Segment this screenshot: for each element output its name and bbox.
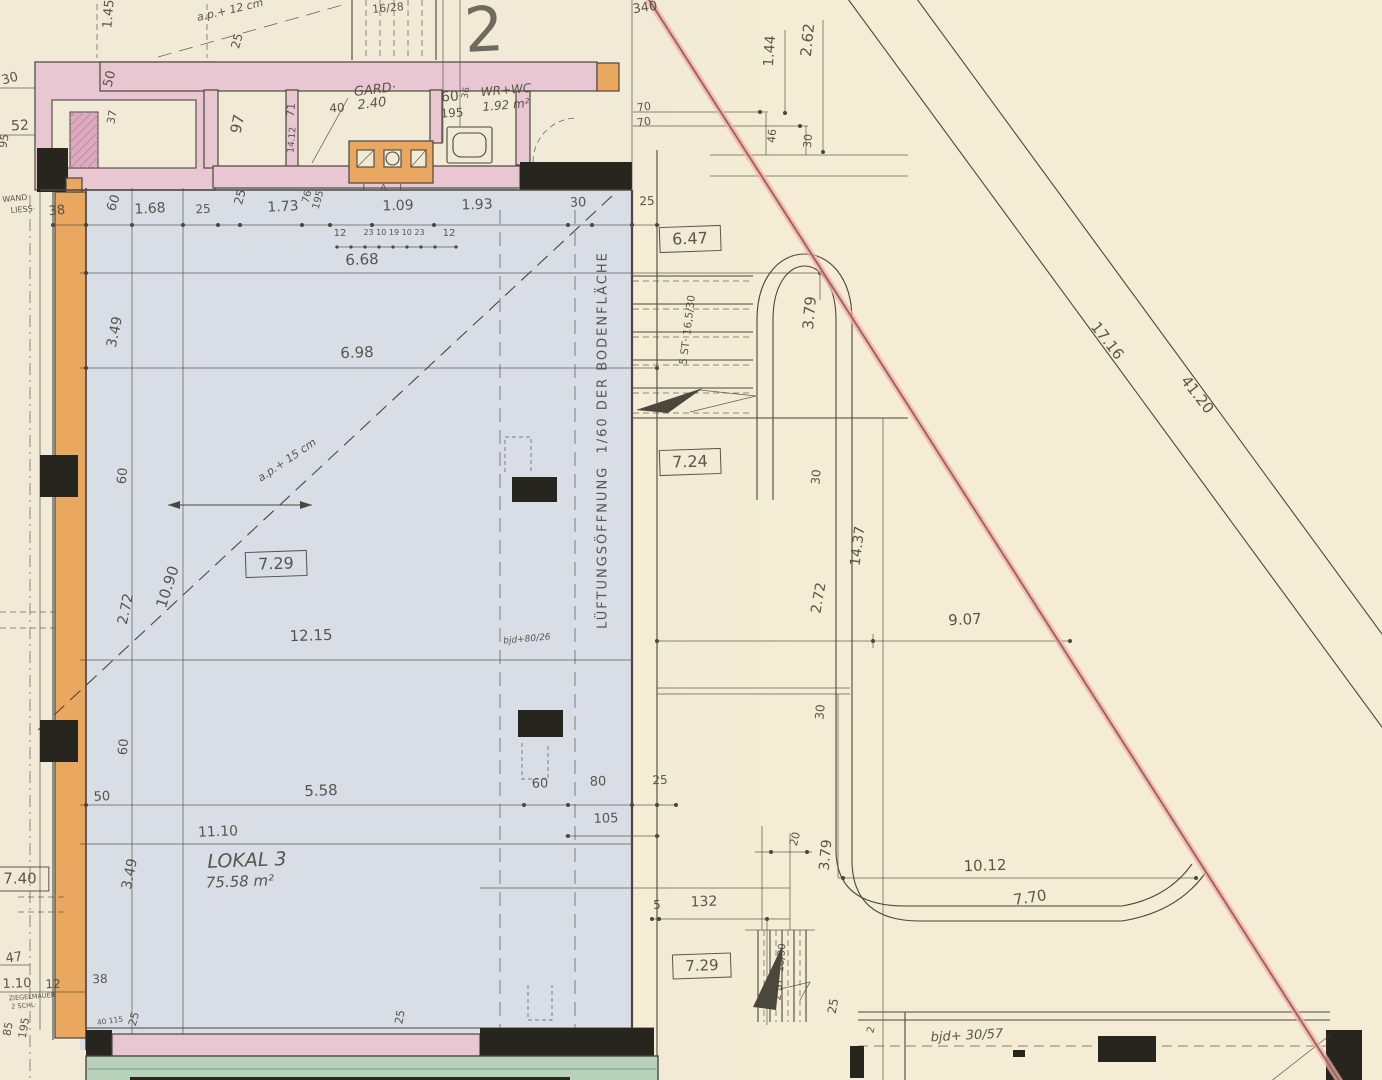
- dimension-label: 16/28: [372, 1, 405, 15]
- dimension-label: 30: [802, 134, 814, 149]
- text-annotation: LIESS·: [10, 205, 35, 215]
- text-annotation: LÜFTUNGSÖFFNUNG 1/60 DER BODENFLÄCHE: [597, 251, 610, 629]
- boxed-dimension-label: 7.40: [0, 867, 50, 892]
- boxed-dimension-label: 7.24: [659, 448, 721, 476]
- text-annotation: bjd+80/26: [503, 633, 551, 646]
- dimension-label: 195: [312, 189, 327, 210]
- boxed-dimension-label: 7.29: [672, 952, 732, 979]
- text-annotation: LOKAL 3: [207, 850, 287, 872]
- dimension-label: 60: [116, 467, 130, 485]
- dimension-label: 52: [11, 119, 30, 134]
- dimension-label: 3.79: [818, 839, 835, 871]
- dimension-label: 2: [866, 1026, 877, 1035]
- dimension-label: 1.09: [382, 198, 414, 213]
- dimension-label: 50: [102, 69, 119, 88]
- text-annotation: 2 ST· 16/30: [774, 943, 789, 1001]
- text-annotation: bjd+ 30/57: [930, 1028, 1003, 1045]
- dimension-label: 60: [532, 777, 549, 791]
- dimension-label: 6.68: [345, 252, 379, 268]
- floor-plan: 305295WANDLIESS·1.455037a.p.+ 12 cm25977…: [0, 0, 1382, 1080]
- dimension-label: 30: [570, 196, 587, 210]
- text-annotation: 75.58 m²: [206, 873, 275, 890]
- dimension-label: 14.37: [849, 525, 868, 567]
- dimension-label: 2.62: [799, 23, 817, 58]
- dimension-label: 25: [826, 997, 840, 1014]
- dimension-label: 25: [195, 203, 211, 216]
- dimension-label: 25: [652, 774, 668, 787]
- dimension-label: 25: [232, 188, 248, 206]
- dimension-label: 40: [329, 101, 345, 114]
- dimension-label: 12.15: [289, 628, 332, 644]
- dimension-label: 195: [17, 1017, 31, 1040]
- text-annotation: 2 SCHL·: [11, 1002, 37, 1010]
- dimension-label: 1.68: [134, 201, 166, 217]
- dimension-label: 37: [105, 109, 118, 125]
- dimension-label: 3.49: [105, 315, 125, 348]
- dimension-label: 5.58: [304, 783, 338, 799]
- text-annotation: L A L: [363, 185, 410, 194]
- dimension-label: 2.72: [809, 581, 828, 614]
- dimension-label: 60: [441, 89, 460, 104]
- dimension-label: 195: [440, 106, 464, 119]
- labels-layer: 305295WANDLIESS·1.455037a.p.+ 12 cm25977…: [0, 0, 1382, 1080]
- dimension-label: 12: [45, 978, 61, 991]
- dimension-label: 12: [443, 229, 456, 239]
- dimension-label: 41.20: [1178, 373, 1216, 416]
- boxed-dimension-label: 6.47: [659, 225, 721, 253]
- dimension-label: 10.12: [963, 858, 1006, 874]
- dimension-label: 105: [593, 812, 618, 826]
- dimension-label: 5: [653, 899, 661, 911]
- text-annotation: 5 ST· 16,5/30: [679, 295, 698, 366]
- dimension-label: 38: [92, 973, 108, 986]
- dimension-label: 60: [117, 738, 131, 756]
- dimension-label: 70: [636, 116, 651, 129]
- dimension-label: 25: [229, 32, 245, 50]
- dimension-label: 10.90: [154, 564, 182, 609]
- dimension-label: 25: [393, 1009, 406, 1025]
- dimension-label: 340: [632, 0, 658, 16]
- dimension-label: 1.10: [2, 977, 31, 991]
- dimension-label: 25: [639, 195, 655, 208]
- text-annotation: a.p.+ 12 cm: [196, 0, 264, 23]
- dimension-label: 2: [463, 0, 506, 62]
- dimension-label: 30: [0, 71, 19, 88]
- dimension-label: 23 10 19 10 23: [363, 229, 424, 237]
- text-annotation: WAND: [2, 194, 28, 204]
- dimension-label: 1.73: [267, 199, 299, 215]
- dimension-label: 80: [590, 775, 607, 789]
- dimension-label: 132: [690, 895, 717, 910]
- dimension-label: 20: [788, 831, 802, 847]
- dimension-label: 9.07: [948, 612, 982, 629]
- dimension-label: 71: [285, 103, 297, 118]
- dimension-label: 47: [5, 950, 23, 965]
- dimension-label: 95: [0, 133, 11, 149]
- dimension-label: 1.93: [461, 197, 493, 212]
- dimension-label: 3.79: [801, 296, 819, 331]
- dimension-label: 11.10: [198, 824, 239, 839]
- dimension-label: 40 115: [96, 1015, 123, 1026]
- dimension-label: 25: [127, 1011, 141, 1027]
- dimension-label: 97: [229, 113, 248, 135]
- dimension-label: 12: [334, 229, 347, 239]
- dimension-label: 1.45: [101, 0, 116, 29]
- dimension-label: 46: [766, 129, 778, 144]
- dimension-label: 60: [105, 193, 123, 213]
- dimension-label: 7.70: [1012, 888, 1047, 908]
- text-annotation: a.p.+ 15 cm: [256, 437, 318, 484]
- dimension-label: 17.16: [1088, 319, 1126, 362]
- dimension-label: 30: [813, 704, 826, 720]
- dimension-label: 6.98: [340, 345, 374, 361]
- dimension-label: 30: [809, 469, 822, 485]
- dimension-label: 2.40: [357, 96, 387, 112]
- boxed-dimension-label: 7.29: [245, 550, 307, 578]
- dimension-label: 2.72: [116, 592, 136, 625]
- dimension-label: 1.44: [762, 35, 778, 67]
- dimension-label: 3.49: [120, 857, 140, 890]
- dimension-label: 36: [462, 87, 473, 100]
- text-annotation: 1.92 m²: [482, 97, 530, 113]
- dimension-label: 50: [93, 790, 110, 804]
- dimension-label: 14.12: [287, 127, 298, 153]
- dimension-label: 38: [48, 204, 66, 218]
- dimension-label: 70: [636, 101, 651, 114]
- dimension-label: 85: [1, 1021, 14, 1037]
